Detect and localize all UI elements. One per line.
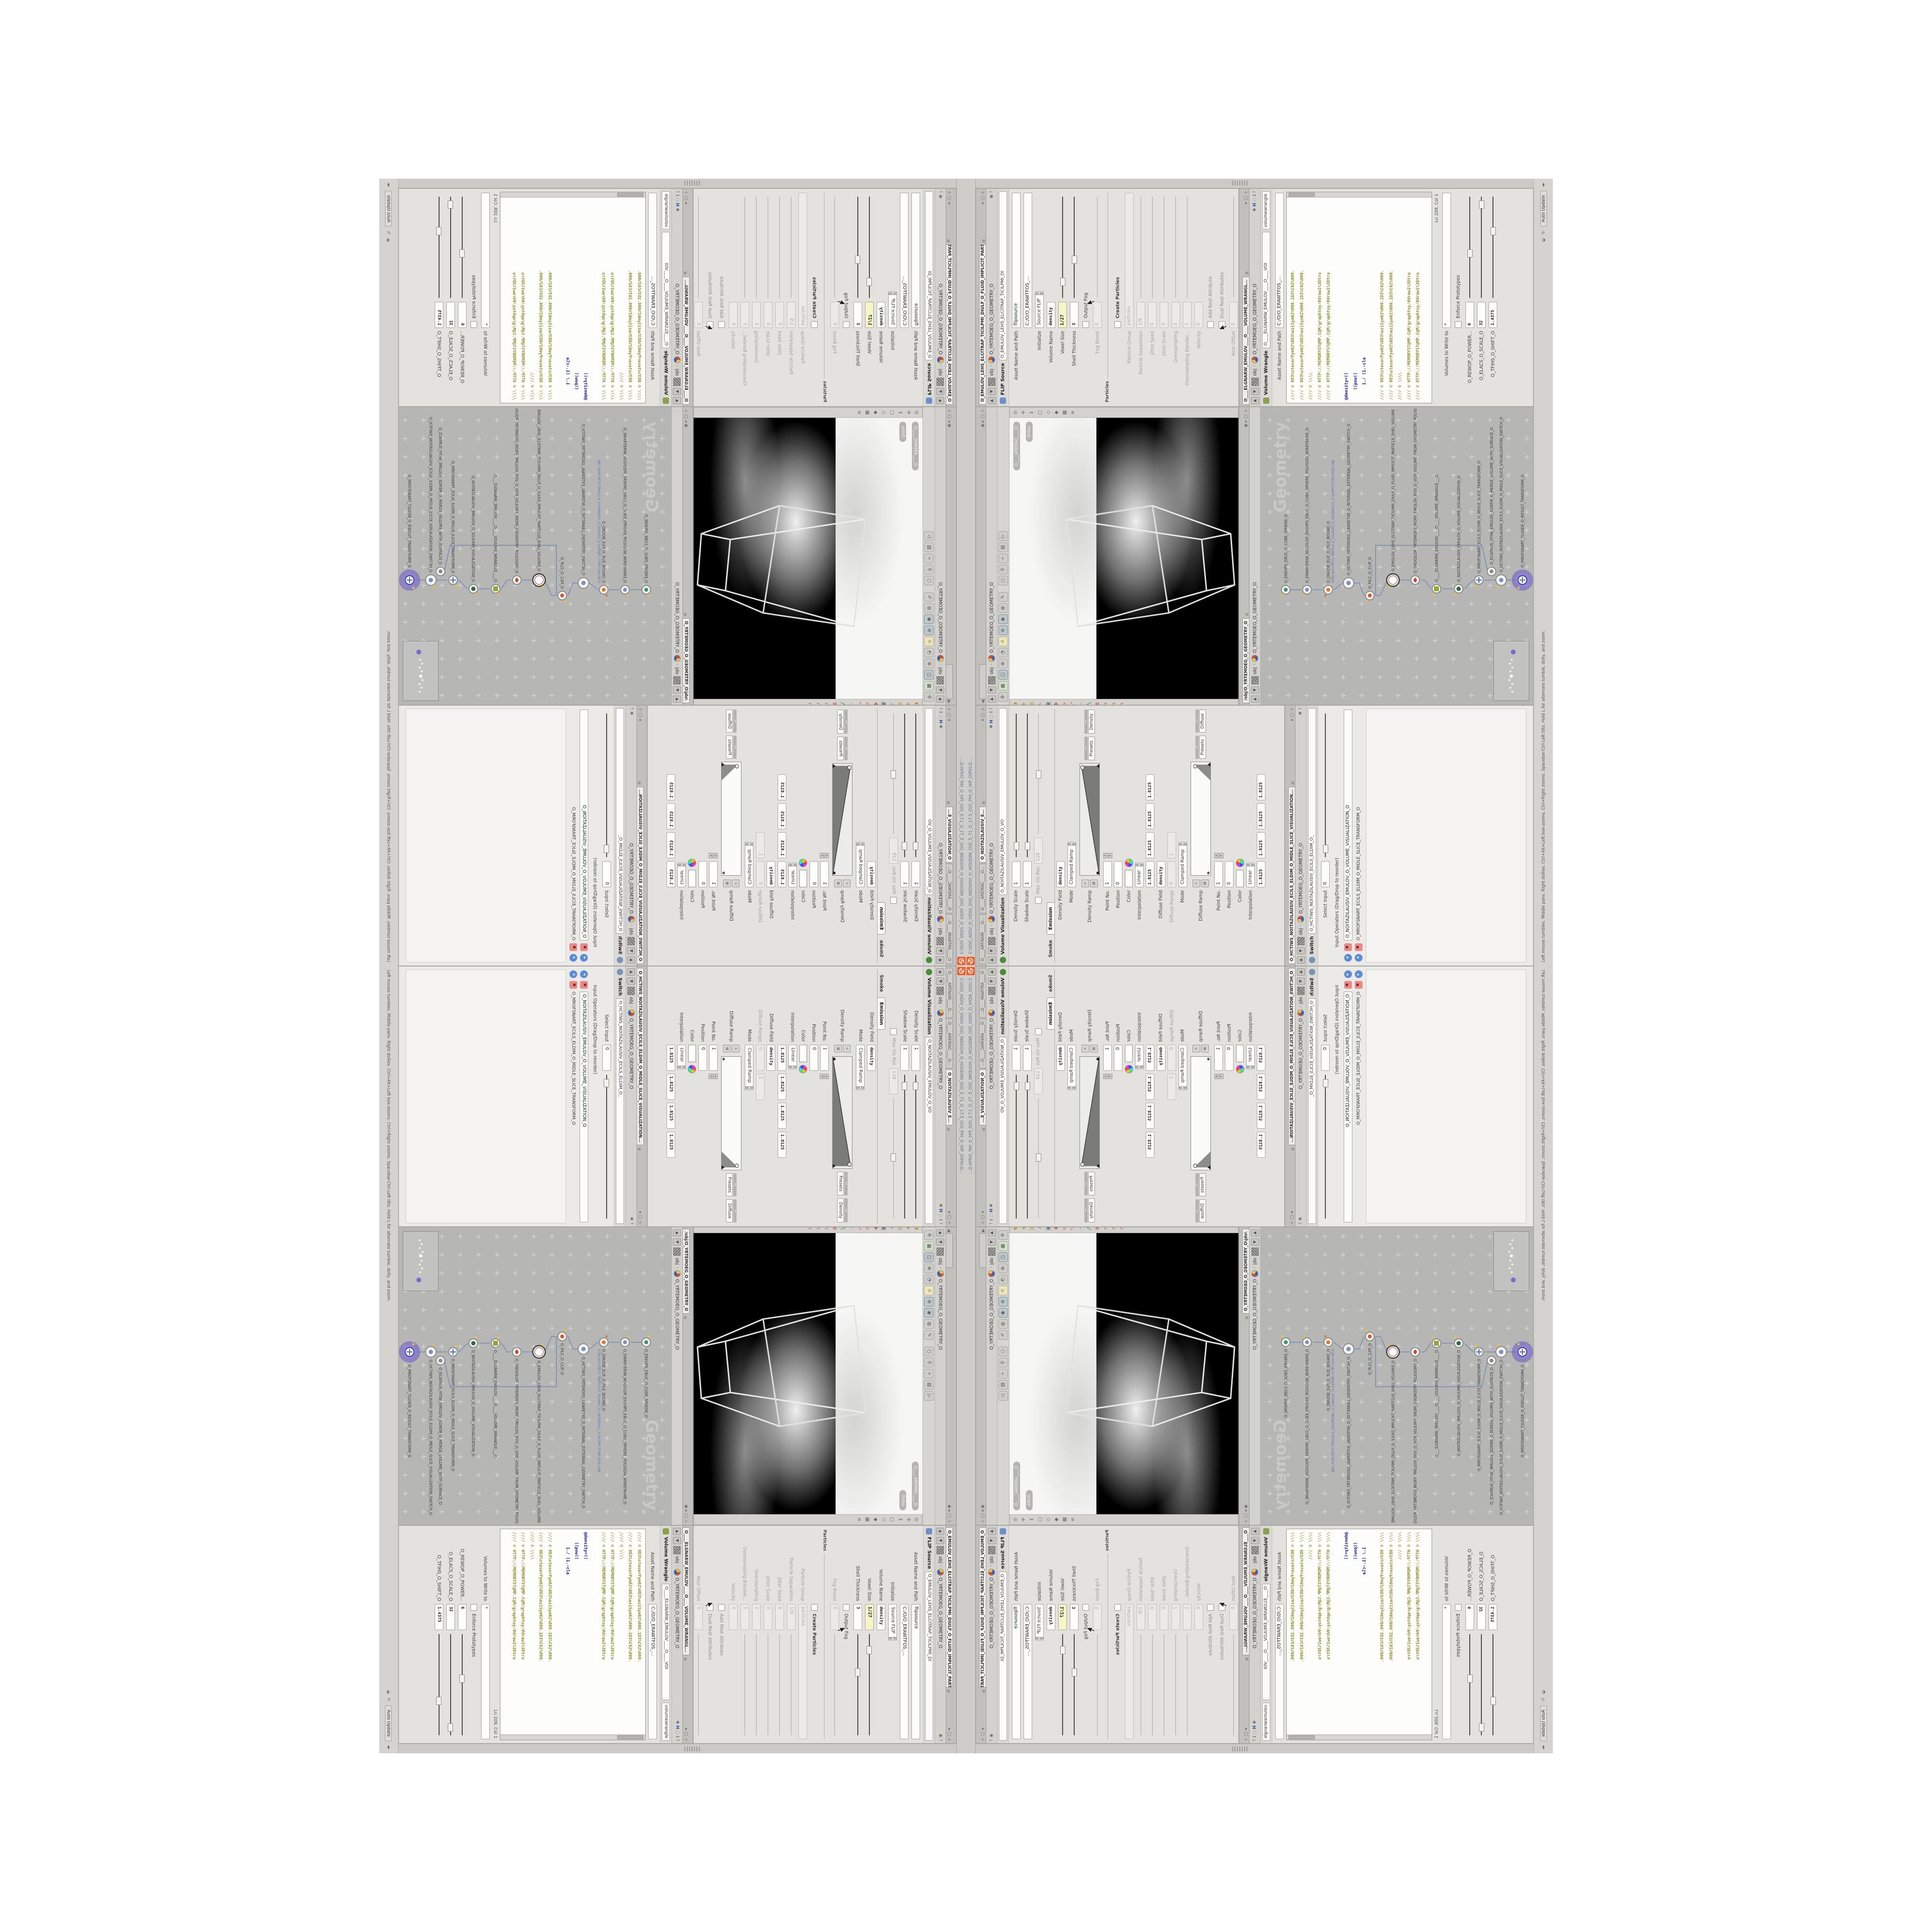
diffuse-ramp-widget[interactable] <box>721 762 741 876</box>
nav-up-icon[interactable]: ▲ <box>988 696 996 703</box>
pane-tab-bar[interactable]: O____ARTNAM____O... O____AREMAC____O... … <box>946 706 956 966</box>
breadcrumb[interactable]: ▲▼ obj› O_YRTEMOEG_O_GEOMETRY_O ✱? <box>625 706 637 966</box>
diffuse-mode-select[interactable]: Clamped Ramp <box>745 1045 754 1090</box>
asset-path-input[interactable]: C:/O/O_ERAWTFOS_... <box>900 1604 909 1739</box>
oversampling-input[interactable]: 2 <box>752 1604 761 1630</box>
pane-tab-visualization[interactable]: O_NOITAZILAUSIV_E... <box>946 1069 953 1125</box>
probe-icon[interactable]: ⌖ <box>924 1369 934 1378</box>
diffuse-preset-select[interactable]: Diffuse <box>726 710 733 733</box>
nav-up-icon[interactable]: ▲ <box>988 1229 996 1236</box>
density-scale-slider[interactable] <box>916 713 917 857</box>
shift-slider[interactable] <box>439 1634 440 1735</box>
pane-tab-bar[interactable]: O_HCTIWS_NOITAZILAUSIV_ECILS_ELDIM_O_MID… <box>1285 966 1295 1226</box>
breadcrumb-root[interactable]: obj <box>938 369 943 376</box>
volume-name-input[interactable]: density <box>1047 1604 1055 1630</box>
shift-slider[interactable] <box>1492 1634 1493 1735</box>
asset-path-input[interactable]: C:/O/O_ERAWTFOS_... <box>900 193 909 328</box>
pane-tab[interactable]: /obj/O_YRTEMOEG_O_GEOMETRY_O <box>1242 1229 1249 1314</box>
rest-offset-input[interactable]: 0 <box>694 302 703 328</box>
close-icon[interactable]: ⊠ <box>946 239 951 244</box>
pane-tab-mantra[interactable]: O____ARTNAM____O... <box>979 914 986 964</box>
input-reorder-icon[interactable]: ◂ <box>1344 954 1352 962</box>
node-name-field[interactable]: volumewrangle <box>1262 191 1270 229</box>
viewport-left-toolbar[interactable]: ◑◈▤ ↖▣ ✥↻⤢ ✂⋀ ⊞∩∩∩ <box>1009 699 1238 705</box>
input-operator-1[interactable]: O_NOITAZILAUSIV_EMULOV_O_VOLUME_VISUALIZ… <box>1344 710 1352 940</box>
pane-tab-bar[interactable]: ◀ ◉▸▢＋ <box>946 407 956 705</box>
create-particles-checkbox[interactable] <box>1114 321 1121 328</box>
close-icon[interactable]: ⊠ <box>981 800 986 806</box>
visualizer-icon[interactable]: ◍ <box>924 1319 934 1329</box>
nav-up-icon[interactable]: ▲ <box>937 696 945 703</box>
color-wheel-icon[interactable] <box>688 859 696 867</box>
volumes-to-write-input[interactable]: * <box>1442 193 1451 328</box>
pane-scroll-strip[interactable] <box>398 179 956 188</box>
density-mode-select[interactable]: Clamped Ramp <box>856 1045 865 1090</box>
shadow-scale-input[interactable]: 1 <box>1023 861 1032 887</box>
nav-up-icon[interactable]: ▲ <box>988 1528 996 1535</box>
nav-down-icon[interactable]: ▼ <box>988 978 996 985</box>
density-field-input[interactable]: density <box>1056 1045 1065 1071</box>
asset-path-input[interactable]: C:/O/O_ERAWTFOS_... <box>1023 1604 1032 1739</box>
rest-offset-input[interactable]: 0 <box>694 1604 703 1630</box>
pane-tab[interactable] <box>979 1233 986 1268</box>
node-name-field[interactable]: O_HCTIWS_NOITAZILAUSIV_ECILS_ELDIM_O_ <box>616 998 624 1224</box>
scale-input[interactable]: 32 <box>446 302 455 328</box>
diffuse-presets-button[interactable]: Presets <box>726 736 733 759</box>
close-icon[interactable]: ⊠ <box>1245 1315 1249 1320</box>
output-fog-checkbox[interactable] <box>1082 321 1089 328</box>
jitter-seed-input[interactable]: 0 <box>775 302 784 328</box>
add-rest-checkbox[interactable] <box>718 321 725 328</box>
normal-lighting-icon[interactable]: ◔ <box>924 648 934 657</box>
asset-name-input[interactable]: flipsource <box>911 1604 920 1739</box>
shift-input[interactable]: 1.4375 <box>435 302 443 328</box>
smoke-emission-tabs[interactable]: Smoke Emission <box>878 966 887 1226</box>
diffuse-presets-button[interactable]: Presets <box>726 1173 733 1197</box>
background-image-icon[interactable]: ▦ <box>998 681 1008 691</box>
asset-name-input[interactable]: flipsource <box>911 193 920 328</box>
node-name-field[interactable]: O_NOITAZILAUSIV_EMULOV_O_VO <box>999 708 1007 895</box>
pane-tab-bar[interactable]: O_EMULOV_LEHS_ELCITRAP_TICILPMI_DIULF_O_… <box>976 1526 986 1743</box>
pane-tab-bar[interactable]: O____ARTNAM____O... O____AREMAC____O... … <box>976 706 986 966</box>
auto-update-select[interactable]: Auto Update <box>385 191 392 227</box>
snapshot-icon[interactable]: ▧ <box>998 1380 1008 1390</box>
oversampling-bandwidth-input[interactable]: 1 <box>740 302 749 328</box>
pane-tab[interactable] <box>946 664 953 699</box>
color-wheel-icon[interactable] <box>1125 859 1133 867</box>
disable-lighting-icon[interactable]: ⊗ <box>998 1264 1008 1273</box>
node-path-field[interactable]: O____ELGNARW_EMULOV____O____VOI <box>1262 232 1270 348</box>
nav-up-icon[interactable]: ▲ <box>937 397 945 404</box>
breadcrumb[interactable]: ▲▼ obj› O_YRTEMOEG_O_GEOMETRY_O ◉? <box>986 189 997 406</box>
input-delete-icon[interactable]: ✖ <box>569 981 577 989</box>
tab-emission[interactable]: Emission <box>1047 997 1054 1030</box>
splitter-grip[interactable] <box>683 181 700 185</box>
diffuse-mode-select[interactable]: Clamped Ramp <box>745 842 754 887</box>
nav-down-icon[interactable]: ▼ <box>673 388 682 395</box>
shell-thickness-slider[interactable] <box>1074 197 1075 298</box>
pane-tab[interactable] <box>946 1233 953 1268</box>
breadcrumb[interactable]: ▲▼ obj› O_YRTEMOEG_O_GEOMETRY_O ✱? <box>625 966 637 1226</box>
breadcrumb[interactable]: ▲▼ obj› O_YRTEMOEG_O_GEOMETRY_O ✱H◌ℹ? <box>986 966 997 1226</box>
breadcrumb[interactable]: ▲▼ obj› O_YRTEMOEG_O_GEOMETRY_O <box>1250 407 1261 705</box>
density-ramp-widget[interactable] <box>832 1056 852 1169</box>
recook-icon[interactable]: ↻ <box>1541 1698 1546 1702</box>
max-vis-res-input[interactable]: 128 <box>1034 838 1043 864</box>
output-fog-checkbox[interactable] <box>843 1604 850 1611</box>
network-minimap[interactable] <box>403 641 439 701</box>
density-field-input[interactable]: density <box>1056 861 1065 887</box>
normal-lighting-icon[interactable]: ◔ <box>924 1275 934 1284</box>
nav-down-icon[interactable]: ▼ <box>673 686 682 694</box>
rest-offset-input[interactable]: 0 <box>1229 1604 1238 1630</box>
jitter-seed-input[interactable]: 0 <box>1148 302 1157 328</box>
shell-thickness-slider[interactable] <box>857 197 858 298</box>
key-icon[interactable]: ⚲ <box>924 1358 934 1367</box>
nav-down-icon[interactable]: ▼ <box>937 388 945 395</box>
diffuse-presets-button[interactable]: Presets <box>1199 1173 1206 1197</box>
viewport[interactable]: O____AREMAC____O Ortho ◑◈▤ ↖▣ ✥↻⤢ ✂⋀ ⊞∩∩… <box>1009 1227 1238 1525</box>
pane-tab[interactable]: O____ELGNARW_EMULOV____O____VOLUME_WRANG… <box>683 277 690 405</box>
input-reorder-icon[interactable]: ◂ <box>580 954 588 962</box>
ramp-marker[interactable] <box>1096 1164 1100 1168</box>
input-delete-icon[interactable]: ✖ <box>1344 981 1352 989</box>
pane-tab[interactable]: O____ELGNARW_EMULOV____O____VOLUME_WRANG… <box>1242 1527 1249 1655</box>
probe-icon[interactable]: ⌖ <box>998 554 1008 563</box>
input-delete-icon[interactable]: ✖ <box>580 981 588 989</box>
breadcrumb[interactable]: ▲▼ obj› O_YRTEMOEG_O_GEOMETRY_O <box>671 407 682 705</box>
diffuse-field-input[interactable]: density <box>1157 861 1165 887</box>
particle-group-input[interactable]: particles <box>798 193 807 328</box>
disable-lighting-icon[interactable]: ⊗ <box>998 659 1008 668</box>
volumes-to-write-input[interactable]: * <box>481 1604 490 1739</box>
tab-smoke[interactable]: Smoke <box>1047 970 1054 996</box>
nav-up-icon[interactable]: ▲ <box>673 1229 682 1236</box>
scale-slider[interactable] <box>1481 1634 1482 1735</box>
brush-icon[interactable]: ✎ <box>924 1330 934 1340</box>
nav-down-icon[interactable]: ▼ <box>937 947 945 954</box>
normal-lighting-icon[interactable]: ◔ <box>998 1275 1008 1284</box>
scale-input[interactable]: 32 <box>1477 302 1486 328</box>
nav-up-icon[interactable]: ▲ <box>673 696 682 703</box>
node-name-field[interactable]: O_EMULOV_LEHS_ELCITRAP_TICILPMI_DI <box>999 1572 1007 1741</box>
density-presets-button[interactable]: Presets <box>1088 737 1095 760</box>
visualizer-icon[interactable]: ◍ <box>924 603 934 613</box>
color-wheel-icon[interactable] <box>1125 1065 1133 1073</box>
pane-tab-bar[interactable]: O_HCTIWS_NOITAZILAUSIV_ECILS_ELDIM_O_MID… <box>637 706 647 966</box>
nav-down-icon[interactable]: ▼ <box>1251 1537 1259 1544</box>
initialize-select[interactable]: Source FLIP <box>1035 1604 1044 1641</box>
breadcrumb[interactable]: ▲▼ obj› O_YRTEMOEG_O_GEOMETRY_O ✱H◌ℹ? <box>986 706 997 966</box>
dot-icon[interactable]: ○ <box>998 1347 1008 1356</box>
pane-arrows-icon[interactable]: ◂▸ <box>1541 1745 1546 1749</box>
density-presets-button[interactable]: Presets <box>1088 1172 1095 1195</box>
breadcrumb[interactable]: ▲▼ obj› O_YRTEMOEG_O_GEOMETRY_O ✱H◌ℹ? <box>671 1526 682 1743</box>
network-canvas[interactable]: Geometry O_EREHPS_EBUC_O_CUBE_SPHERE_O O… <box>399 1227 671 1525</box>
node-name-field[interactable]: O_NOITAZILAUSIV_EMULOV_O_VO <box>925 1037 933 1224</box>
splitter-grip[interactable] <box>1232 1747 1249 1751</box>
pane-tab-bar[interactable]: O____ARTNAM____O... O____AREMAC____O... … <box>946 966 956 1226</box>
jitter-scale-input[interactable]: 0 <box>764 1604 772 1630</box>
pane-tab-camera[interactable]: O____AREMAC____O... <box>946 864 953 913</box>
shift-slider[interactable] <box>439 197 440 298</box>
nav-up-icon[interactable]: ▲ <box>937 968 945 976</box>
breadcrumb[interactable]: ▲▼ obj› O_YRTEMOEG_O_GEOMETRY_O ✱H◌ℹ? <box>1250 1526 1261 1743</box>
add-rest-checkbox[interactable] <box>1207 321 1214 328</box>
input-delete-icon[interactable]: ✖ <box>1355 981 1363 989</box>
color-wheel-icon[interactable] <box>799 1065 808 1073</box>
pane-tab[interactable]: O_HCTIWS_NOITAZILAUSIV_ECILS_ELDIM_O_MID… <box>637 787 644 964</box>
close-icon[interactable]: ⊠ <box>637 781 641 786</box>
axes-icon[interactable]: ✣ <box>998 1230 1008 1240</box>
recook-icon[interactable]: ↻ <box>1541 230 1546 234</box>
enforce-prototypes-checkbox[interactable] <box>1455 321 1462 328</box>
voxel-size-slider[interactable] <box>869 1634 870 1735</box>
interpolation-select[interactable]: Linear <box>1135 863 1144 887</box>
nav-down-icon[interactable]: ▼ <box>1297 978 1305 985</box>
viewport-right-toolbar[interactable]: ◎✛⇕ ▢◇◆ ▦≡ <box>694 1514 923 1525</box>
pane-tab-mantra[interactable]: O____ARTNAM____O... <box>979 968 986 1018</box>
network-minimap[interactable] <box>1493 1231 1529 1291</box>
density-ramp-widget[interactable] <box>1080 1056 1100 1169</box>
pane-tab[interactable]: O____ELGNARW_EMULOV____O____VOLUME_WRANG… <box>683 1527 690 1655</box>
density-mode-select[interactable]: Clamped Ramp <box>1067 842 1076 887</box>
pane-tab[interactable]: O_EMULOV_LEHS_ELCITRAP_TICILPMI_DIULF_O_… <box>946 244 953 405</box>
breadcrumb-root[interactable]: obj <box>989 1556 994 1563</box>
nav-up-icon[interactable]: ▲ <box>988 397 996 404</box>
close-icon[interactable]: ⊠ <box>1245 612 1249 617</box>
view-mode-pill[interactable]: Ortho <box>899 1490 906 1510</box>
camera-icon[interactable]: ◉ <box>924 1308 934 1318</box>
power-slider[interactable] <box>1469 197 1470 298</box>
lock-camera-icon[interactable]: ◫ <box>924 1252 934 1262</box>
pane-tab-bar[interactable]: O_EMULOV_LEHS_ELCITRAP_TICILPMI_DIULF_O_… <box>946 189 956 406</box>
ramp-marker[interactable] <box>721 762 724 767</box>
key-icon[interactable]: ⚲ <box>924 565 934 574</box>
volume-name-input[interactable]: density <box>1047 302 1055 328</box>
nav-down-icon[interactable]: ▼ <box>988 1537 996 1544</box>
snapshot-icon[interactable]: ▧ <box>924 1380 934 1390</box>
diffuse-field-input[interactable]: density <box>1157 1045 1165 1071</box>
oversampling-input[interactable]: 2 <box>1171 1604 1180 1630</box>
pane-tab-visualization[interactable]: O_NOITAZILAUSIV_E... <box>979 807 986 863</box>
asset-path-input[interactable]: C:/O/O_ERAWTFOS_... <box>1023 193 1032 328</box>
high-quality-light-icon[interactable]: ⊕ <box>924 625 934 635</box>
select-input-field[interactable]: 0 <box>602 861 611 887</box>
scale-input[interactable]: 32 <box>1477 1604 1486 1630</box>
flipbook-icon[interactable]: ▷ <box>924 1391 934 1401</box>
nav-up-icon[interactable]: ▲ <box>937 1229 945 1236</box>
axes-icon[interactable]: ✣ <box>924 1230 934 1240</box>
viewport-right-toolbar[interactable]: ◎✛⇕ ▢◇◆ ▦≡ <box>694 407 923 418</box>
particle-group-input[interactable]: particles <box>798 1604 807 1739</box>
interpolation-select[interactable]: Linear <box>788 1045 797 1069</box>
fog-boost-input[interactable]: 0 <box>830 1604 839 1630</box>
input-reorder-icon[interactable]: ◂ <box>1344 970 1352 978</box>
position-input[interactable]: 0 <box>810 1045 818 1071</box>
auto-update-select[interactable]: Auto Update <box>1540 191 1547 227</box>
nav-down-icon[interactable]: ▼ <box>988 1238 996 1246</box>
density-scale-input[interactable]: 1 <box>1012 1045 1021 1071</box>
dot-icon[interactable]: ○ <box>998 576 1008 585</box>
viewport[interactable]: O____AREMAC____O Ortho ◑◈▤ ↖▣ ✥↻⤢ ✂⋀ ⊞∩∩… <box>1009 407 1238 705</box>
nav-up-icon[interactable]: ▲ <box>673 397 682 404</box>
smoke-emission-tabs[interactable]: Smoke Emission <box>1045 966 1054 1226</box>
pane-tab[interactable]: O_HCTIWS_NOITAZILAUSIV_ECILS_ELDIM_O_MID… <box>1288 787 1295 964</box>
max-vis-res-input[interactable]: 128 <box>890 838 898 864</box>
key-icon[interactable]: ⚲ <box>998 565 1008 574</box>
breadcrumb[interactable]: ▲▼ obj› O_YRTEMOEG_O_GEOMETRY_O ◉? <box>935 1526 946 1743</box>
view-mode-pill[interactable]: Ortho <box>899 422 906 442</box>
pane-tab-bar[interactable]: O_HCTIWS_NOITAZILAUSIV_ECILS_ELDIM_O_MID… <box>1285 706 1295 966</box>
pane-tab-bar[interactable]: /obj/O_YRTEMOEG_O_GEOMETRY_O⊠ ◉▸▢＋ <box>1239 407 1250 705</box>
shift-input[interactable]: 1.4375 <box>435 1604 443 1630</box>
pane-tab[interactable]: /obj/O_YRTEMOEG_O_GEOMETRY_O <box>683 618 690 703</box>
close-icon[interactable]: ⊠ <box>946 1689 951 1694</box>
voxel-size-slider[interactable] <box>1062 1634 1063 1735</box>
density-mode-select[interactable]: Clamped Ramp <box>856 842 865 887</box>
vex-snippet-editor[interactable]: //// © 0D3%steserPym62%0D3%eziSym62%000.… <box>1286 1529 1432 1740</box>
nav-down-icon[interactable]: ▼ <box>1251 388 1259 395</box>
shadow-scale-input[interactable]: 1 <box>901 861 909 887</box>
pane-tab-bar[interactable]: ◀ ◉▸▢＋ <box>976 1227 986 1525</box>
viewport-left-toolbar[interactable]: ◑◈▤ ↖▣ ✥↻⤢ ✂⋀ ⊞∩∩∩ <box>694 699 923 705</box>
pane-tab[interactable]: /obj/O_YRTEMOEG_O_GEOMETRY_O <box>683 1229 690 1314</box>
ramp-marker[interactable] <box>1207 762 1211 767</box>
density-preset-select[interactable]: Density <box>837 710 844 734</box>
color-wheel-icon[interactable] <box>799 859 808 867</box>
density-scale-input[interactable]: 1 <box>912 1045 921 1071</box>
pane-tab-mantra[interactable]: O____ARTNAM____O... <box>946 968 953 1018</box>
nav-up-icon[interactable]: ▲ <box>627 956 636 964</box>
pane-tab-bar[interactable]: /obj/O_YRTEMOEG_O_GEOMETRY_O⊠ ◉▸▢＋ <box>682 407 693 705</box>
pane-arrows-icon[interactable]: ◂▸ <box>1541 183 1546 187</box>
enforce-prototypes-checkbox[interactable] <box>470 1604 477 1611</box>
input-operator-1[interactable]: O_NOITAZILAUSIV_EMULOV_O_VOLUME_VISUALIZ… <box>1344 992 1352 1222</box>
pane-tab-bar[interactable]: /obj/O_YRTEMOEG_O_GEOMETRY_O⊠ ◉▸▢＋ <box>1239 1227 1250 1525</box>
camera-icon[interactable]: ◉ <box>924 614 934 624</box>
create-particles-checkbox[interactable] <box>811 1604 818 1611</box>
diffuse-preset-select[interactable]: Diffuse <box>726 1199 733 1222</box>
point-no-input[interactable]: 1 <box>1103 861 1112 887</box>
voxel-size-input[interactable]: 1/27 <box>865 302 874 328</box>
asset-path-input[interactable]: C:/O/O_ERAWTFOS_... <box>648 193 657 328</box>
select-input-slider[interactable] <box>606 713 607 857</box>
power-input[interactable]: 6 <box>1465 1604 1474 1630</box>
initialize-select[interactable]: Source FLIP <box>888 291 897 328</box>
diffuse-ramp-widget[interactable] <box>1191 762 1211 876</box>
create-particles-checkbox[interactable] <box>1114 1604 1121 1611</box>
nav-down-icon[interactable]: ▼ <box>988 388 996 395</box>
input-reorder-icon[interactable]: ◂ <box>580 970 588 978</box>
pane-tab[interactable]: O_HCTIWS_NOITAZILAUSIV_ECILS_ELDIM_O_MID… <box>637 968 644 1145</box>
color-swatch[interactable] <box>1125 1045 1133 1062</box>
voxel-size-input[interactable]: 1/27 <box>1058 1604 1067 1630</box>
snapshot-icon[interactable]: ▧ <box>924 542 934 552</box>
tab-smoke[interactable]: Smoke <box>878 970 885 996</box>
smoke-emission-tabs[interactable]: Smoke Emission <box>1045 706 1054 966</box>
breadcrumb[interactable]: ▲▼ obj› O_YRTEMOEG_O_GEOMETRY_O <box>986 1227 997 1525</box>
nav-up-icon[interactable]: ▲ <box>1297 956 1305 964</box>
node-name-field[interactable]: O_HCTIWS_NOITAZILAUSIV_ECILS_ELDIM_O_ <box>1308 708 1316 934</box>
pane-tab[interactable] <box>979 664 986 699</box>
pane-tab[interactable]: /obj/O_YRTEMOEG_O_GEOMETRY_O <box>1242 618 1249 703</box>
diffuse-field-input[interactable]: density <box>767 861 776 887</box>
axes-icon[interactable]: ✣ <box>998 692 1008 702</box>
shadow-scale-slider[interactable] <box>905 1075 906 1219</box>
pane-tab-bar[interactable]: O____ELGNARW_EMULOV____O____VOLUME_WRANG… <box>1239 189 1250 406</box>
oversampling-bandwidth-input[interactable]: 1 <box>1183 1604 1192 1630</box>
pane-tab[interactable]: O_EMULOV_LEHS_ELCITRAP_TICILPMI_DIULF_O_… <box>979 244 986 405</box>
pane-tab-camera[interactable]: O____AREMAC____O... <box>979 864 986 913</box>
nav-down-icon[interactable]: ▼ <box>937 978 945 985</box>
particle-group-input[interactable]: particles <box>1125 1604 1134 1739</box>
close-icon[interactable]: ⊠ <box>1291 1146 1295 1151</box>
pane-tab-bar[interactable]: O_EMULOV_LEHS_ELCITRAP_TICILPMI_DIULF_O_… <box>946 1526 956 1743</box>
nav-down-icon[interactable]: ▼ <box>627 947 636 954</box>
diffuse-preset-select[interactable]: Diffuse <box>1199 710 1206 733</box>
brush-icon[interactable]: ✎ <box>998 592 1008 602</box>
camera-selector-pill[interactable]: O____AREMAC____O <box>912 422 919 470</box>
shift-input[interactable]: 1.4375 <box>1489 302 1497 328</box>
nav-down-icon[interactable]: ▼ <box>988 686 996 694</box>
code-scrollbar[interactable] <box>1287 1734 1432 1740</box>
recook-icon[interactable]: ↻ <box>386 1698 391 1702</box>
power-input[interactable]: 6 <box>458 1604 467 1630</box>
shell-thickness-input[interactable]: 3 <box>853 302 862 328</box>
close-icon[interactable]: ⊠ <box>683 612 687 617</box>
breadcrumb[interactable]: ▲▼ obj› O_YRTEMOEG_O_GEOMETRY_O <box>986 407 997 705</box>
color-swatch[interactable] <box>1125 870 1133 887</box>
pane-tab-bar[interactable]: O_HCTIWS_NOITAZILAUSIV_ECILS_ELDIM_O_MID… <box>637 966 647 1226</box>
close-icon[interactable]: ⊠ <box>946 1126 951 1132</box>
ramp-marker[interactable] <box>721 1165 724 1170</box>
velocity-input[interactable]: 0 <box>1194 302 1203 328</box>
shell-thickness-slider[interactable] <box>1074 1634 1075 1735</box>
oversampling-input[interactable]: 2 <box>1171 302 1180 328</box>
node-name-field[interactable]: O_NOITAZILAUSIV_EMULOV_O_VO <box>999 1037 1007 1224</box>
particle-separation-input[interactable]: 1/9 <box>1136 302 1145 328</box>
lock-camera-icon[interactable]: ◫ <box>924 670 934 680</box>
code-scrollbar[interactable] <box>500 192 645 198</box>
color-swatch[interactable] <box>799 870 807 887</box>
asset-path-input[interactable]: C:/O/O_ERAWTFOS_... <box>648 1604 657 1739</box>
tab-emission[interactable]: Emission <box>878 902 885 935</box>
asset-path-input[interactable]: C:/O/O_ERAWTFOS_... <box>1275 193 1284 328</box>
input-reorder-icon[interactable]: ◂ <box>1355 954 1363 962</box>
breadcrumb[interactable]: ▲▼ obj› O_YRTEMOEG_O_GEOMETRY_O <box>935 1227 946 1525</box>
position-input[interactable]: 0 <box>810 861 818 887</box>
particle-separation-input[interactable]: 1/9 <box>787 1604 796 1630</box>
shell-thickness-slider[interactable] <box>857 1634 858 1735</box>
node-name-field[interactable]: O_EMULOV_LEHS_ELCITRAP_TICILPMI_DI <box>925 191 933 360</box>
diffuse-presets-button[interactable]: Presets <box>1199 736 1206 759</box>
fog-boost-slider[interactable] <box>1097 1634 1098 1735</box>
splitter-grip[interactable] <box>683 1747 700 1751</box>
particle-separation-input[interactable]: 1/9 <box>1136 1604 1145 1630</box>
visualizer-icon[interactable]: ◍ <box>998 603 1008 613</box>
create-particles-checkbox[interactable] <box>811 321 818 328</box>
fog-boost-input[interactable]: 0 <box>1093 302 1102 328</box>
rest-offset-input[interactable]: 0 <box>1229 302 1238 328</box>
density-preset-select[interactable]: Density <box>1088 1198 1095 1222</box>
shadow-scale-slider[interactable] <box>905 713 906 857</box>
fog-boost-slider[interactable] <box>834 197 835 298</box>
snapshot-icon[interactable]: ▧ <box>998 542 1008 552</box>
breadcrumb[interactable]: ▲▼ obj› O_YRTEMOEG_O_GEOMETRY_O ◉? <box>986 1526 997 1743</box>
point-no-input[interactable]: 1 <box>820 1045 829 1071</box>
dot-icon[interactable]: ○ <box>924 1347 934 1356</box>
